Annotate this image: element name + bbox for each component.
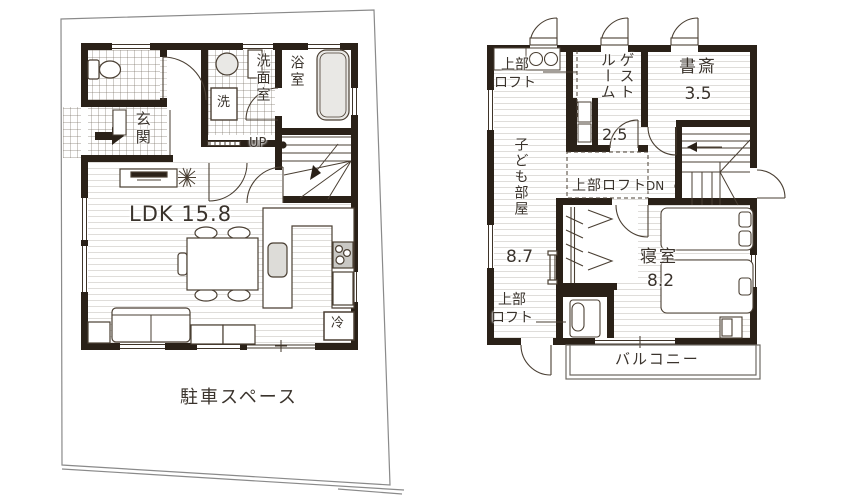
fridge-label: 冷 (331, 316, 344, 332)
stair-down-dot (674, 182, 681, 189)
stair-up-dot (279, 141, 286, 148)
sofa-icon (88, 308, 255, 344)
stairs-down-label: DN (646, 179, 664, 194)
tv-board-icon (120, 169, 177, 187)
balcony-label: バルコニー (615, 350, 700, 369)
dining-table-icon (178, 227, 258, 301)
floorplan-canvas: 玄関 洗 洗面室 浴室 UP LDK 15.8 冷 駐車スペース 上部 ロフト … (0, 0, 850, 500)
stairs-up-label: UP (249, 136, 266, 152)
washroom-sliding-door (208, 142, 240, 146)
room-label-entrance: 玄関 (133, 111, 152, 147)
room-label-loft-bottom: 上部 ロフト (485, 292, 539, 327)
kitchen-sink-icon (268, 243, 287, 277)
bed-icon (661, 208, 753, 250)
guest-size-label: 2.5 (602, 125, 627, 145)
room-label-study: 書斎 (650, 57, 746, 78)
bathtub-icon (317, 50, 349, 120)
room-label-ldk: LDK 15.8 (129, 201, 232, 227)
room-label-washroom: 洗面室 (253, 53, 271, 104)
bedroom-size-label: 8.2 (647, 271, 674, 292)
room-label-laundry: 洗 (217, 95, 230, 111)
parking-label: 駐車スペース (180, 387, 298, 410)
loft-mid-label: 上部ロフト (572, 178, 647, 196)
loft-storage-icon (570, 300, 600, 337)
stove-icon (333, 242, 353, 268)
room-label-bathroom: 浴室 (287, 55, 305, 89)
plant-icon (178, 168, 196, 187)
room-label-bedroom: 寝室 (640, 247, 678, 268)
nightstand-icon (720, 317, 742, 338)
room-label-loft-top: 上部 ロフト (488, 57, 542, 92)
room-label-kids: 子ども部屋 (511, 137, 529, 217)
study-size-label: 3.5 (650, 84, 746, 105)
right-casement-window (757, 170, 785, 198)
guest-closet-shelves (578, 102, 591, 142)
loft-ladder-icon (548, 251, 557, 284)
kids-size-label: 8.7 (506, 247, 533, 268)
top-casement-windows (530, 18, 698, 45)
toilet-icon (88, 60, 121, 79)
kitchen-counter-icon (263, 208, 354, 308)
